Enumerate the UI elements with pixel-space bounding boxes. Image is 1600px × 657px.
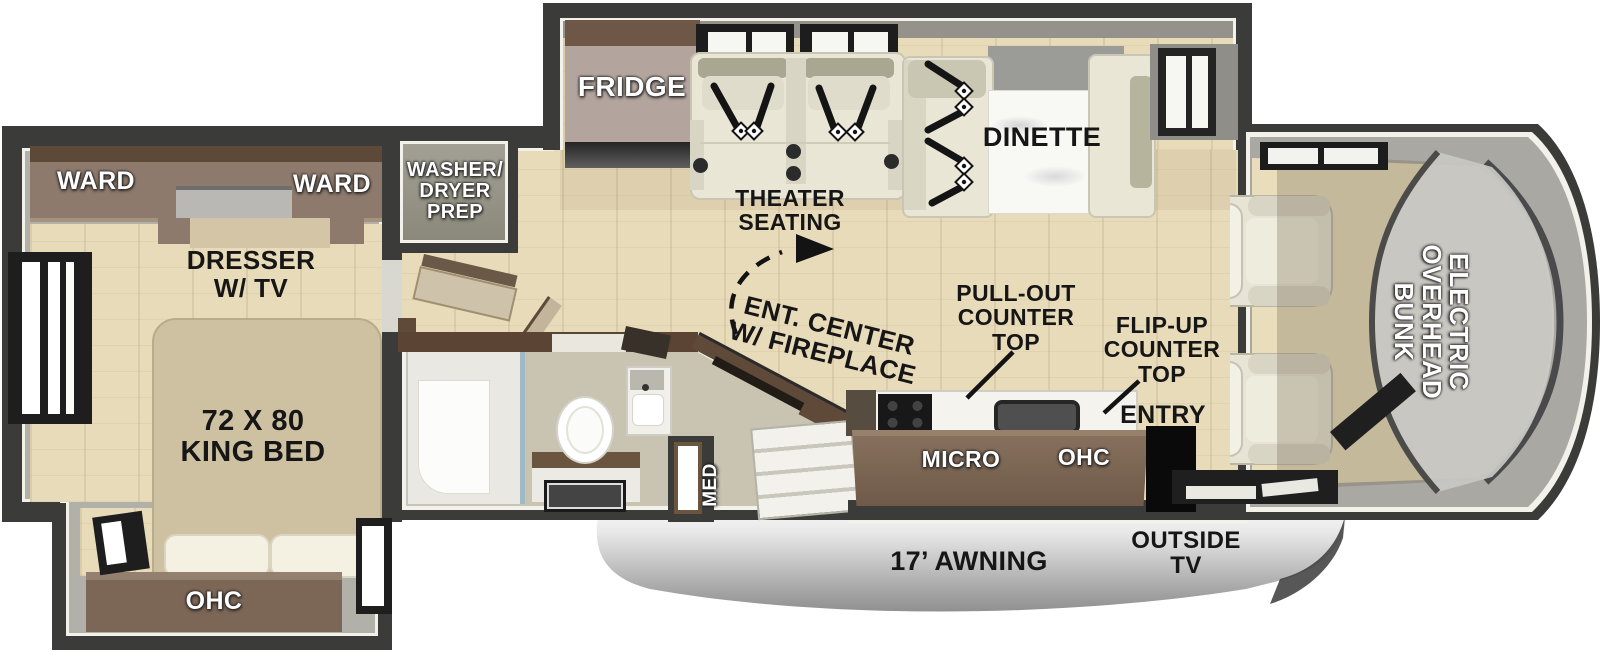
pull-out-counter-label: PULL-OUT COUNTER TOP — [941, 281, 1091, 354]
entry-label: ENTRY — [1098, 402, 1228, 429]
bedroom-ohc-label: OHC — [154, 588, 274, 615]
theater-seating-label: THEATER SEATING — [700, 186, 880, 235]
pull-out-pointer — [967, 352, 1013, 398]
overhead-bunk-label: ELECTRIC OVERHEAD BUNK — [1388, 232, 1472, 412]
outside-tv-label: OUTSIDE TV — [1116, 528, 1256, 579]
dresser-tv-label: DRESSER W/ TV — [141, 247, 361, 302]
washer-dryer-label: WASHER/ DRYER PREP — [395, 160, 515, 224]
flip-up-counter-label: FLIP-UP COUNTER TOP — [1087, 313, 1237, 386]
seatbelt-buckles — [733, 123, 864, 141]
rv-floorplan: WARD WARD DRESSER W/ TV 72 X 80 KING BED… — [0, 0, 1600, 657]
med-label: MED — [701, 455, 725, 515]
ent-center-arrowhead — [796, 234, 834, 263]
king-bed-label: 72 X 80 KING BED — [133, 406, 373, 467]
micro-label: MICRO — [901, 447, 1021, 471]
fridge-label: FRIDGE — [562, 72, 702, 102]
ward-right-label: WARD — [272, 171, 392, 198]
dinette-label: DINETTE — [952, 123, 1132, 152]
awning-label: 17’ AWNING — [869, 547, 1069, 576]
ward-left-label: WARD — [36, 168, 156, 195]
kitchen-ohc-label: OHC — [1024, 445, 1144, 469]
